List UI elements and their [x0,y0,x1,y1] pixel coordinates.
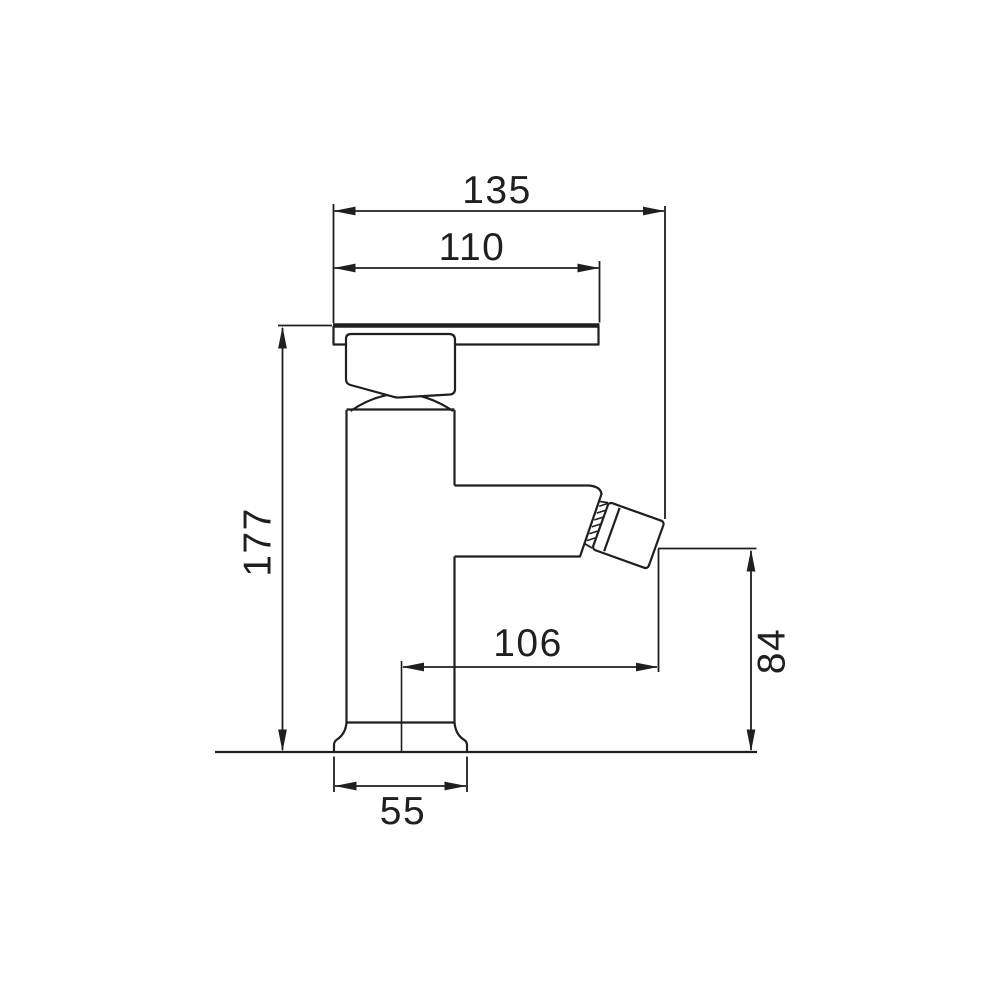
spout-fill [455,486,602,557]
body-column [347,410,455,723]
arrowhead-up [747,550,756,572]
base-left-flare [334,723,347,752]
dim-label-overall-width: 135 [462,169,532,212]
dimension-outlet-height: 84 [658,549,794,752]
dimension-base-width: 55 [334,757,467,834]
dim-label-plate-width: 110 [439,226,506,269]
arrowhead-right [643,207,665,216]
dimension-overall-height: 177 [237,326,333,752]
drawing-canvas: 135 110 177 106 [0,0,1000,1000]
handle-lever [346,334,455,398]
dim-label-base-width: 55 [380,790,426,833]
arrowhead-left [402,663,424,672]
arrowhead-right [445,782,467,791]
arrowhead-right [578,264,600,273]
dim-label-spout-reach: 106 [493,622,563,665]
dimension-plate-width: 110 [334,226,600,323]
base-right-flare [455,723,468,752]
arrowhead-down [747,730,756,752]
dimension-spout-reach: 106 [402,549,659,751]
arrowhead-left [335,782,357,791]
arrowhead-down [278,730,287,752]
arrowhead-left [334,264,356,273]
base-foot [334,723,467,752]
arrowhead-up [278,327,287,349]
dim-label-overall-height: 177 [237,507,280,577]
dim-label-outlet-height: 84 [751,628,794,674]
technical-drawing: 135 110 177 106 [0,0,1000,1000]
faucet-outline [333,326,665,752]
arrowhead-right [636,663,658,672]
aerator-cap [592,502,664,569]
arrowhead-left [334,207,356,216]
